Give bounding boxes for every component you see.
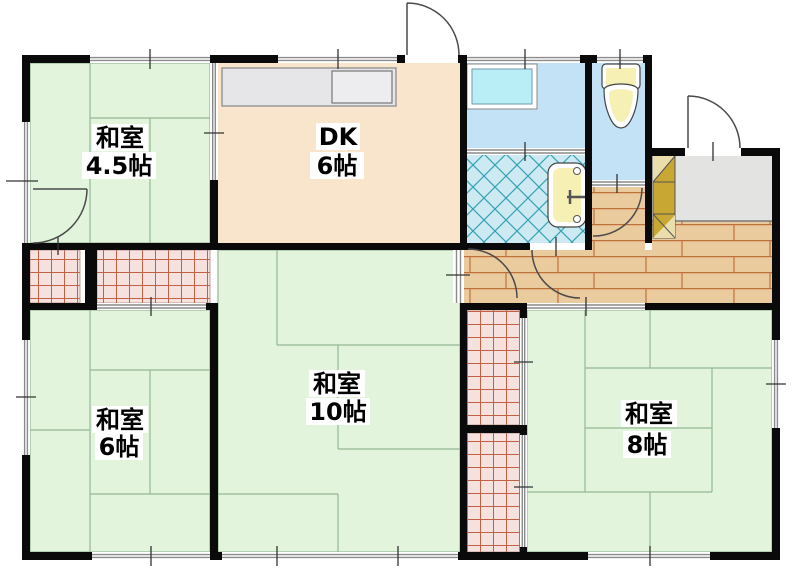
floor-plan: 和室 4.5帖 DK 6帖 和室 6帖 和室 10帖 和室 8帖	[0, 0, 800, 584]
room-size-dk: 6帖	[317, 152, 358, 180]
room-size-washitsu-4-5: 4.5帖	[86, 152, 153, 180]
label-washitsu-6: 和室 6帖	[92, 406, 148, 461]
washer-pan-icon	[467, 64, 537, 109]
closet-east-upper	[467, 310, 520, 425]
door-dk-exterior-opening	[405, 55, 458, 63]
label-dk: DK 6帖	[310, 123, 364, 180]
room-name-washitsu-10: 和室	[313, 370, 361, 398]
room-name-dk: DK	[319, 123, 359, 151]
room-name-washitsu-4-5: 和室	[96, 124, 144, 152]
label-washitsu-4-5: 和室 4.5帖	[82, 124, 156, 180]
shoe-cabinet-icon	[653, 155, 675, 238]
toilet-passage-floor	[592, 187, 645, 303]
closet-east-lower	[467, 433, 520, 552]
room-size-washitsu-6: 6帖	[99, 433, 140, 461]
bathtub-icon	[548, 163, 586, 227]
door-arc-dk-exterior	[407, 3, 459, 55]
label-washitsu-10: 和室 10帖	[306, 370, 370, 426]
kitchen-counter	[222, 68, 396, 106]
closet-northwest-wide	[97, 250, 210, 303]
room-size-washitsu-10: 10帖	[309, 398, 366, 426]
door-arc-entrance	[688, 96, 740, 148]
room-name-washitsu-8: 和室	[625, 400, 673, 428]
floor-plan-canvas: 和室 4.5帖 DK 6帖 和室 6帖 和室 10帖 和室 8帖	[0, 0, 800, 584]
room-name-washitsu-6: 和室	[96, 406, 144, 434]
closet-northwest-small	[30, 250, 80, 303]
kitchen-sink	[332, 71, 392, 103]
room-size-washitsu-8: 8帖	[627, 431, 668, 459]
